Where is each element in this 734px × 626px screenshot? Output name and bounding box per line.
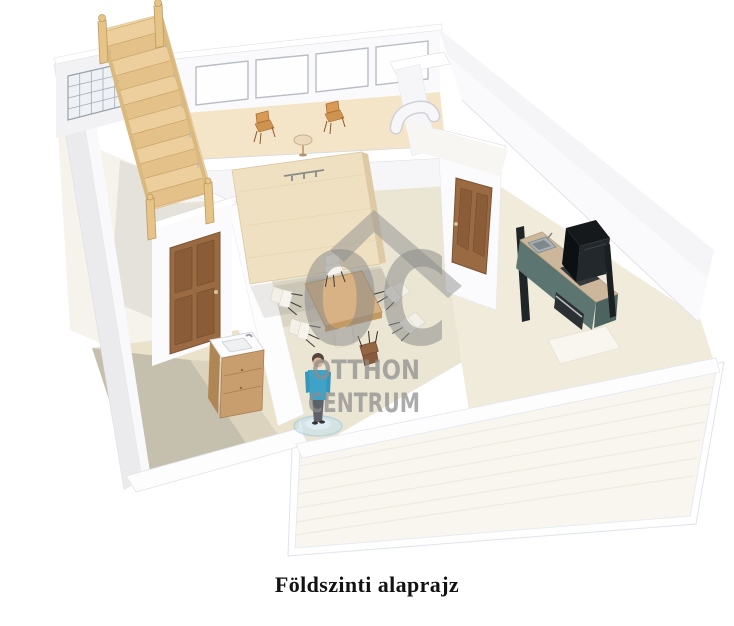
floorplan-screenshot: OC OTTHON CENTRUM Földszinti alaprajz	[0, 0, 734, 626]
floorplan-render: OC OTTHON CENTRUM	[0, 0, 734, 626]
watermark-line2: CENTRUM	[308, 388, 420, 419]
door-knob	[454, 222, 458, 226]
refrigerator	[562, 220, 610, 282]
bathroom-door	[170, 232, 220, 354]
watermark-logo: OC OTTHON CENTRUM	[300, 210, 462, 419]
door-knob	[214, 290, 218, 294]
bathroom-vanity	[208, 332, 264, 418]
window-pane-2	[256, 55, 308, 98]
watermark-line1: OTTHON	[312, 355, 420, 386]
window-pane-3	[316, 48, 368, 92]
floorplan-caption: Földszinti alaprajz	[0, 572, 734, 598]
watermark-monogram: OC	[300, 226, 448, 375]
window-pane-1	[196, 61, 248, 105]
kitchen-door	[452, 178, 492, 274]
